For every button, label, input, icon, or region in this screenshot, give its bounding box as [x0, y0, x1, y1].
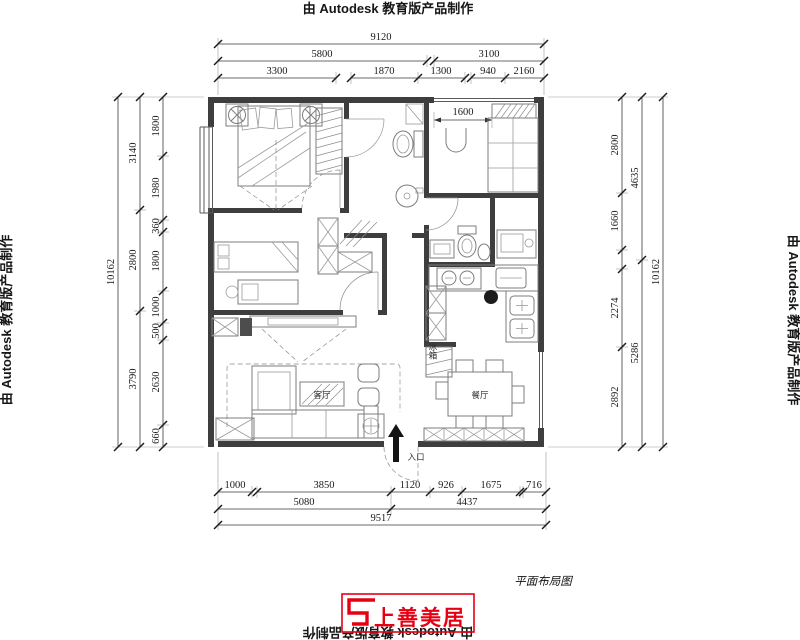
- entrance-arrow: [388, 424, 404, 462]
- dim-label: 3100: [479, 49, 500, 60]
- dim-label: 9120: [371, 32, 392, 43]
- watermark-top: 由 Autodesk 教育版产品制作: [303, 1, 473, 16]
- dim-label: 1870: [374, 66, 395, 77]
- dining-room: 冰箱 餐厅: [424, 342, 524, 441]
- dimensions-left: 10162 3140 2800 3790 1800 1980 360 1800 …: [106, 93, 204, 451]
- floor-plan-svg: 由 Autodesk 教育版产品制作 由 Autodesk 教育版产品制作 由 …: [0, 0, 800, 640]
- dim-label: 2274: [610, 297, 621, 319]
- dim-label: 10162: [106, 259, 117, 285]
- dim-label: 3300: [267, 66, 288, 77]
- watermark-left: 由 Autodesk 教育版产品制作: [0, 235, 14, 405]
- dim-label: 1600: [453, 107, 474, 118]
- dim-label: 1800: [151, 116, 162, 137]
- balcony-laundry: 1600: [434, 104, 538, 192]
- dim-label: 2800: [128, 250, 139, 271]
- dim-label: 926: [438, 480, 454, 491]
- dim-label: 2160: [514, 66, 535, 77]
- kitchen: [426, 265, 538, 342]
- dim-label: 5800: [312, 49, 333, 60]
- dim-label: 1000: [225, 480, 246, 491]
- dim-label: 5286: [630, 343, 641, 364]
- living-room: 客厅 入口: [212, 316, 425, 481]
- dim-label: 360: [151, 218, 162, 234]
- dim-label: 2800: [610, 135, 621, 156]
- dim-label: 716: [526, 480, 542, 491]
- dimensions-right: 2800 1660 2274 2892 4635 5286 10162: [548, 93, 668, 451]
- dim-label: 4635: [630, 168, 641, 189]
- floor-plan-page: 由 Autodesk 教育版产品制作 由 Autodesk 教育版产品制作 由 …: [0, 0, 800, 640]
- dim-label: 4437: [457, 497, 478, 508]
- dim-label: 1675: [481, 480, 502, 491]
- dim-label: 1980: [151, 178, 162, 199]
- bathroom-1: [346, 104, 423, 207]
- watermark-right: 由 Autodesk 教育版产品制作: [786, 235, 800, 405]
- dim-label: 10162: [651, 259, 662, 285]
- dim-label: 1300: [431, 66, 452, 77]
- logo-text: 上善美居: [374, 606, 466, 630]
- bedroom-2: [214, 218, 378, 310]
- dim-label: 3140: [128, 143, 139, 164]
- dim-label: 3850: [314, 480, 335, 491]
- dimensions-top: 9120 5800 3100 3300 1870 1300 940 2160: [214, 32, 548, 95]
- fridge-label: 冰箱: [428, 342, 438, 361]
- dim-label: 2892: [610, 387, 621, 408]
- entrance-label: 入口: [407, 452, 424, 462]
- dim-label: 5080: [294, 497, 315, 508]
- bathroom-2: [426, 198, 536, 260]
- dim-label: 660: [151, 428, 162, 444]
- logo-icon: [349, 600, 375, 624]
- dim-label: 1120: [400, 480, 421, 491]
- dim-label: 1000: [151, 297, 162, 318]
- dim-label: 3790: [128, 369, 139, 390]
- dining-room-label: 餐厅: [471, 390, 489, 400]
- drawing-title: 平面布局图: [514, 575, 573, 588]
- living-room-label: 客厅: [313, 390, 331, 400]
- dim-label: 1800: [151, 251, 162, 272]
- dim-label: 940: [480, 66, 496, 77]
- dim-label: 9517: [371, 513, 392, 524]
- dimensions-bottom: 1000 3850 1120 926 1675 716 5080 4437 95…: [214, 452, 550, 530]
- dim-label: 500: [151, 323, 162, 339]
- dim-label: 1660: [610, 211, 621, 232]
- dim-label: 2630: [151, 372, 162, 393]
- master-bedroom: [226, 104, 342, 210]
